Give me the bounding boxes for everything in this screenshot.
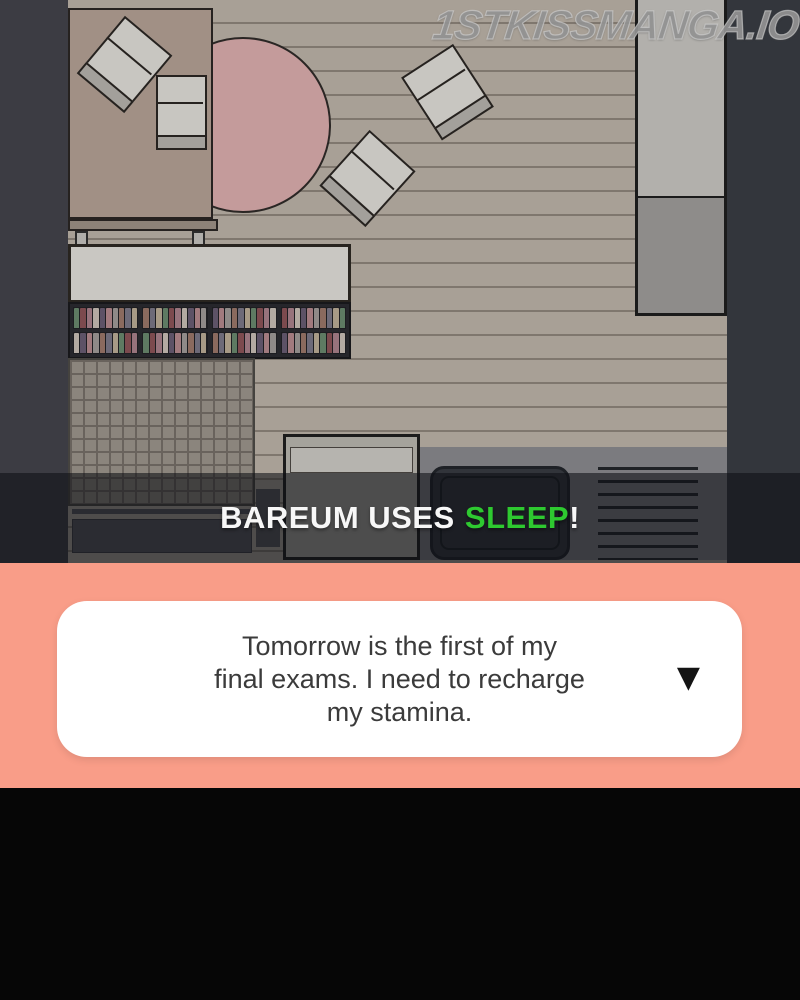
book-spine: [295, 333, 300, 353]
book-spine: [87, 333, 92, 353]
caption-highlight: SLEEP: [465, 500, 569, 536]
book-group: [142, 307, 207, 329]
book-spine: [327, 308, 332, 328]
book-spine: [288, 308, 293, 328]
book-spine: [106, 333, 111, 353]
webtoon-page: BAREUM USES SLEEP ! 1STKISSMANGA.IO Tomo…: [0, 0, 800, 1000]
book-spine: [175, 308, 180, 328]
book-spine: [195, 308, 200, 328]
dialog-text-line: Tomorrow is the first of my: [242, 630, 557, 663]
book-spine: [270, 308, 275, 328]
book-spine: [219, 308, 224, 328]
book-spine: [238, 308, 243, 328]
book-spine: [301, 308, 306, 328]
book-spine: [320, 333, 325, 353]
book-spine: [307, 308, 312, 328]
book-spine: [188, 333, 193, 353]
book-spine: [113, 308, 118, 328]
book-spine: [132, 308, 137, 328]
dialog-panel: Tomorrow is the first of my final exams.…: [0, 563, 800, 788]
book-spine: [156, 308, 161, 328]
book-spine: [100, 308, 105, 328]
book-spine: [201, 333, 206, 353]
chair: [156, 75, 203, 147]
book-spine: [213, 333, 218, 353]
book-spine: [340, 308, 345, 328]
caption-prefix: BAREUM USES: [220, 500, 455, 536]
book-spine: [169, 308, 174, 328]
book-spine: [132, 333, 137, 353]
book-spine: [264, 308, 269, 328]
book-spine: [188, 308, 193, 328]
bookshelf-row: [73, 332, 346, 354]
book-spine: [251, 308, 256, 328]
book-spine: [225, 333, 230, 353]
book-spine: [119, 308, 124, 328]
book-spine: [74, 333, 79, 353]
dialog-text-line: final exams. I need to recharge: [214, 663, 585, 696]
book-spine: [264, 333, 269, 353]
book-spine: [257, 333, 262, 353]
book-spine: [320, 308, 325, 328]
caption-suffix: !: [569, 500, 580, 536]
book-spine: [125, 308, 130, 328]
book-spine: [307, 333, 312, 353]
dialog-text-line: my stamina.: [327, 696, 473, 729]
letterbox-footer: [0, 788, 800, 1000]
book-spine: [251, 333, 256, 353]
book-spine: [232, 308, 237, 328]
bed-foot: [638, 198, 724, 313]
chair-split: [156, 102, 203, 104]
book-group: [281, 307, 346, 329]
book-spine: [340, 333, 345, 353]
book-group: [73, 307, 138, 329]
book-spine: [163, 333, 168, 353]
book-group: [212, 307, 277, 329]
book-spine: [74, 308, 79, 328]
bookshelf-row: [73, 307, 346, 329]
book-spine: [150, 308, 155, 328]
table-edge: [68, 219, 218, 231]
book-spine: [80, 333, 85, 353]
book-spine: [270, 333, 275, 353]
book-group: [142, 332, 207, 354]
lower-desk-top: [290, 447, 413, 473]
speech-bubble[interactable]: Tomorrow is the first of my final exams.…: [57, 601, 742, 757]
book-spine: [314, 333, 319, 353]
book-spine: [106, 308, 111, 328]
book-spine: [93, 308, 98, 328]
book-group: [73, 332, 138, 354]
book-spine: [175, 333, 180, 353]
book-group: [281, 332, 346, 354]
chair-seat: [156, 75, 207, 141]
book-spine: [87, 308, 92, 328]
book-spine: [282, 333, 287, 353]
chair-backrest: [156, 135, 207, 150]
book-spine: [119, 333, 124, 353]
book-spine: [182, 308, 187, 328]
book-spine: [327, 333, 332, 353]
book-spine: [150, 333, 155, 353]
book-spine: [143, 308, 148, 328]
book-spine: [232, 333, 237, 353]
bookshelf: [68, 302, 351, 359]
book-spine: [314, 308, 319, 328]
book-spine: [288, 333, 293, 353]
book-spine: [245, 333, 250, 353]
book-spine: [113, 333, 118, 353]
book-spine: [182, 333, 187, 353]
book-spine: [245, 308, 250, 328]
book-spine: [282, 308, 287, 328]
book-spine: [295, 308, 300, 328]
book-group: [212, 332, 277, 354]
book-spine: [238, 333, 243, 353]
book-spine: [201, 308, 206, 328]
battle-caption: BAREUM USES SLEEP !: [0, 473, 800, 563]
site-watermark: 1STKISSMANGA.IO: [430, 2, 800, 49]
book-spine: [333, 308, 338, 328]
book-spine: [143, 333, 148, 353]
book-spine: [195, 333, 200, 353]
book-spine: [225, 308, 230, 328]
book-spine: [213, 308, 218, 328]
book-spine: [156, 333, 161, 353]
desk: [68, 244, 351, 303]
book-spine: [169, 333, 174, 353]
dropdown-arrow-icon[interactable]: ▼: [677, 663, 700, 693]
book-spine: [125, 333, 130, 353]
book-spine: [333, 333, 338, 353]
book-spine: [257, 308, 262, 328]
room-scene: BAREUM USES SLEEP ! 1STKISSMANGA.IO: [0, 0, 800, 563]
book-spine: [80, 308, 85, 328]
book-spine: [100, 333, 105, 353]
book-spine: [301, 333, 306, 353]
book-spine: [93, 333, 98, 353]
book-spine: [219, 333, 224, 353]
book-spine: [163, 308, 168, 328]
